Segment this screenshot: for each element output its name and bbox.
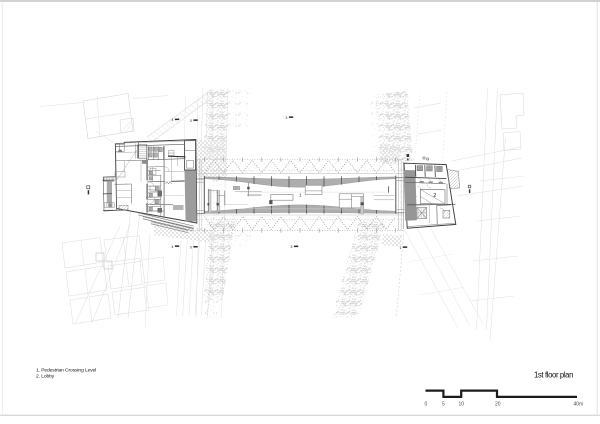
svg-text:10: 10 (459, 402, 465, 408)
svg-text:3: 3 (291, 245, 293, 249)
svg-text:2: 2 (433, 193, 436, 199)
svg-text:2. Lobby: 2. Lobby (36, 374, 55, 380)
svg-text:1st floor plan: 1st floor plan (534, 370, 573, 379)
svg-text:40m: 40m (574, 402, 584, 408)
svg-text:1. Pedestrian Crossing Level: 1. Pedestrian Crossing Level (36, 367, 96, 373)
svg-text:4: 4 (172, 118, 174, 122)
svg-text:20: 20 (495, 402, 501, 408)
svg-text:5: 5 (442, 402, 445, 408)
svg-text:1: 1 (400, 246, 402, 250)
svg-text:0: 0 (190, 119, 192, 123)
svg-text:4: 4 (172, 245, 174, 249)
svg-text:0: 0 (190, 245, 192, 249)
svg-text:0: 0 (425, 402, 428, 408)
svg-text:3: 3 (286, 116, 288, 120)
